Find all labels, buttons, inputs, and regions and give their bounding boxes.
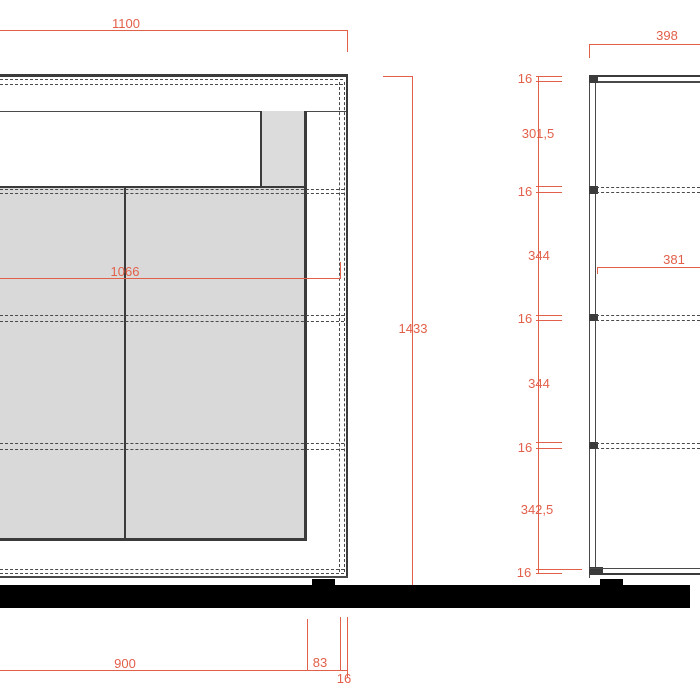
niche-divider-panel	[261, 111, 305, 188]
side-hidden-shelf3-line-1	[596, 443, 700, 444]
front-top-edge-line	[0, 74, 348, 77]
chain-tick-bottom-1	[536, 569, 582, 570]
side-hidden-shelf2-line-2	[596, 320, 700, 321]
front-hidden-side-line-1	[339, 82, 340, 572]
side-hidden-shelf1-line-1	[596, 187, 700, 188]
chain-tick-shelf2-2	[536, 320, 562, 321]
dim-ext-inner-side	[340, 617, 341, 670]
dim-16-bottom-label: 16	[337, 672, 351, 685]
chain-tick-shelf3-2	[536, 448, 562, 449]
dim-1066-tick	[340, 262, 341, 278]
dim-381-label: 381	[663, 253, 685, 266]
front-right-edge-line	[346, 74, 349, 578]
front-hidden-shelf1-line-1	[0, 189, 344, 190]
side-bottom-inner-line	[589, 568, 700, 570]
dim-1066-line	[0, 278, 341, 279]
dim-381-line	[597, 267, 700, 268]
dim-1066-label: 1066	[111, 265, 140, 278]
chain-tick-shelf3-1	[536, 442, 562, 443]
chain-label-16-c: 16	[518, 441, 532, 454]
dim-900-label: 900	[114, 657, 136, 670]
side-bottom-outer-line	[589, 573, 700, 575]
front-hidden-shelf2-line-1	[0, 315, 344, 316]
chain-tick-shelf1-2	[536, 192, 562, 193]
chain-label-344-b: 344	[528, 377, 550, 390]
dim-1433-tick	[383, 76, 412, 77]
chain-tick-shelf1-1	[536, 186, 562, 187]
chain-label-16-a: 16	[518, 185, 532, 198]
dim-ext-outer-side	[347, 617, 348, 678]
side-hidden-shelf3-line-2	[596, 448, 700, 449]
side-hidden-shelf2-line-1	[596, 315, 700, 316]
chain-label-301-5: 301,5	[522, 127, 555, 140]
dim-ext-plinth-right	[307, 619, 308, 670]
chain-tick-shelf2-1	[536, 315, 562, 316]
front-hidden-side-line-2	[344, 82, 345, 572]
chain-label-16-b: 16	[518, 312, 532, 325]
side-left-inner-line	[595, 76, 597, 573]
chain-tick-top-1	[536, 76, 562, 77]
front-doors-right-line	[304, 111, 307, 541]
chain-label-16-top: 16	[518, 72, 532, 85]
dim-1100-tick	[347, 30, 348, 52]
dim-height-chain-line	[538, 76, 539, 573]
front-doors-panel	[0, 186, 306, 541]
dim-398-line	[589, 44, 700, 45]
side-left-outer-line	[589, 75, 591, 578]
front-hidden-top-line-1	[0, 79, 343, 80]
dim-1100-label: 1100	[112, 17, 140, 30]
front-hidden-shelf3-line-1	[0, 443, 344, 444]
front-hidden-bottom-line-2	[0, 573, 344, 574]
dim-1100-line	[0, 30, 348, 31]
chain-tick-top-2	[536, 81, 562, 82]
chain-label-342-5: 342,5	[521, 503, 554, 516]
side-top-panel-section	[589, 75, 598, 83]
door-divider-line	[124, 186, 127, 541]
front-hidden-bottom-line-1	[0, 569, 344, 570]
front-hidden-shelf3-line-2	[0, 449, 344, 450]
front-hidden-top-line-2	[0, 84, 343, 85]
dim-83-label: 83	[313, 656, 327, 669]
front-hidden-shelf2-line-2	[0, 321, 344, 322]
dim-381-tick	[597, 267, 598, 274]
technical-drawing-canvas: 1100 1066 1433 900 83 16 398 381 16 301,…	[0, 0, 700, 700]
dim-398-label: 398	[656, 29, 678, 42]
side-plinth-foot	[600, 579, 623, 586]
dim-bottom-line	[0, 670, 348, 671]
side-top-inner-line	[589, 81, 700, 83]
floor-plinth-strip	[0, 585, 690, 608]
front-hidden-shelf1-line-2	[0, 193, 344, 194]
niche-divider-left-line	[260, 111, 262, 188]
dim-1433-label: 1433	[399, 322, 428, 335]
chain-tick-bottom-2	[536, 573, 562, 574]
side-top-outer-line	[589, 75, 700, 77]
chain-label-16-bottom: 16	[517, 566, 531, 579]
side-hidden-shelf1-line-2	[596, 192, 700, 193]
front-bottom-edge-line	[0, 576, 348, 578]
chain-label-344-a: 344	[528, 249, 550, 262]
dim-398-tick	[589, 44, 590, 58]
